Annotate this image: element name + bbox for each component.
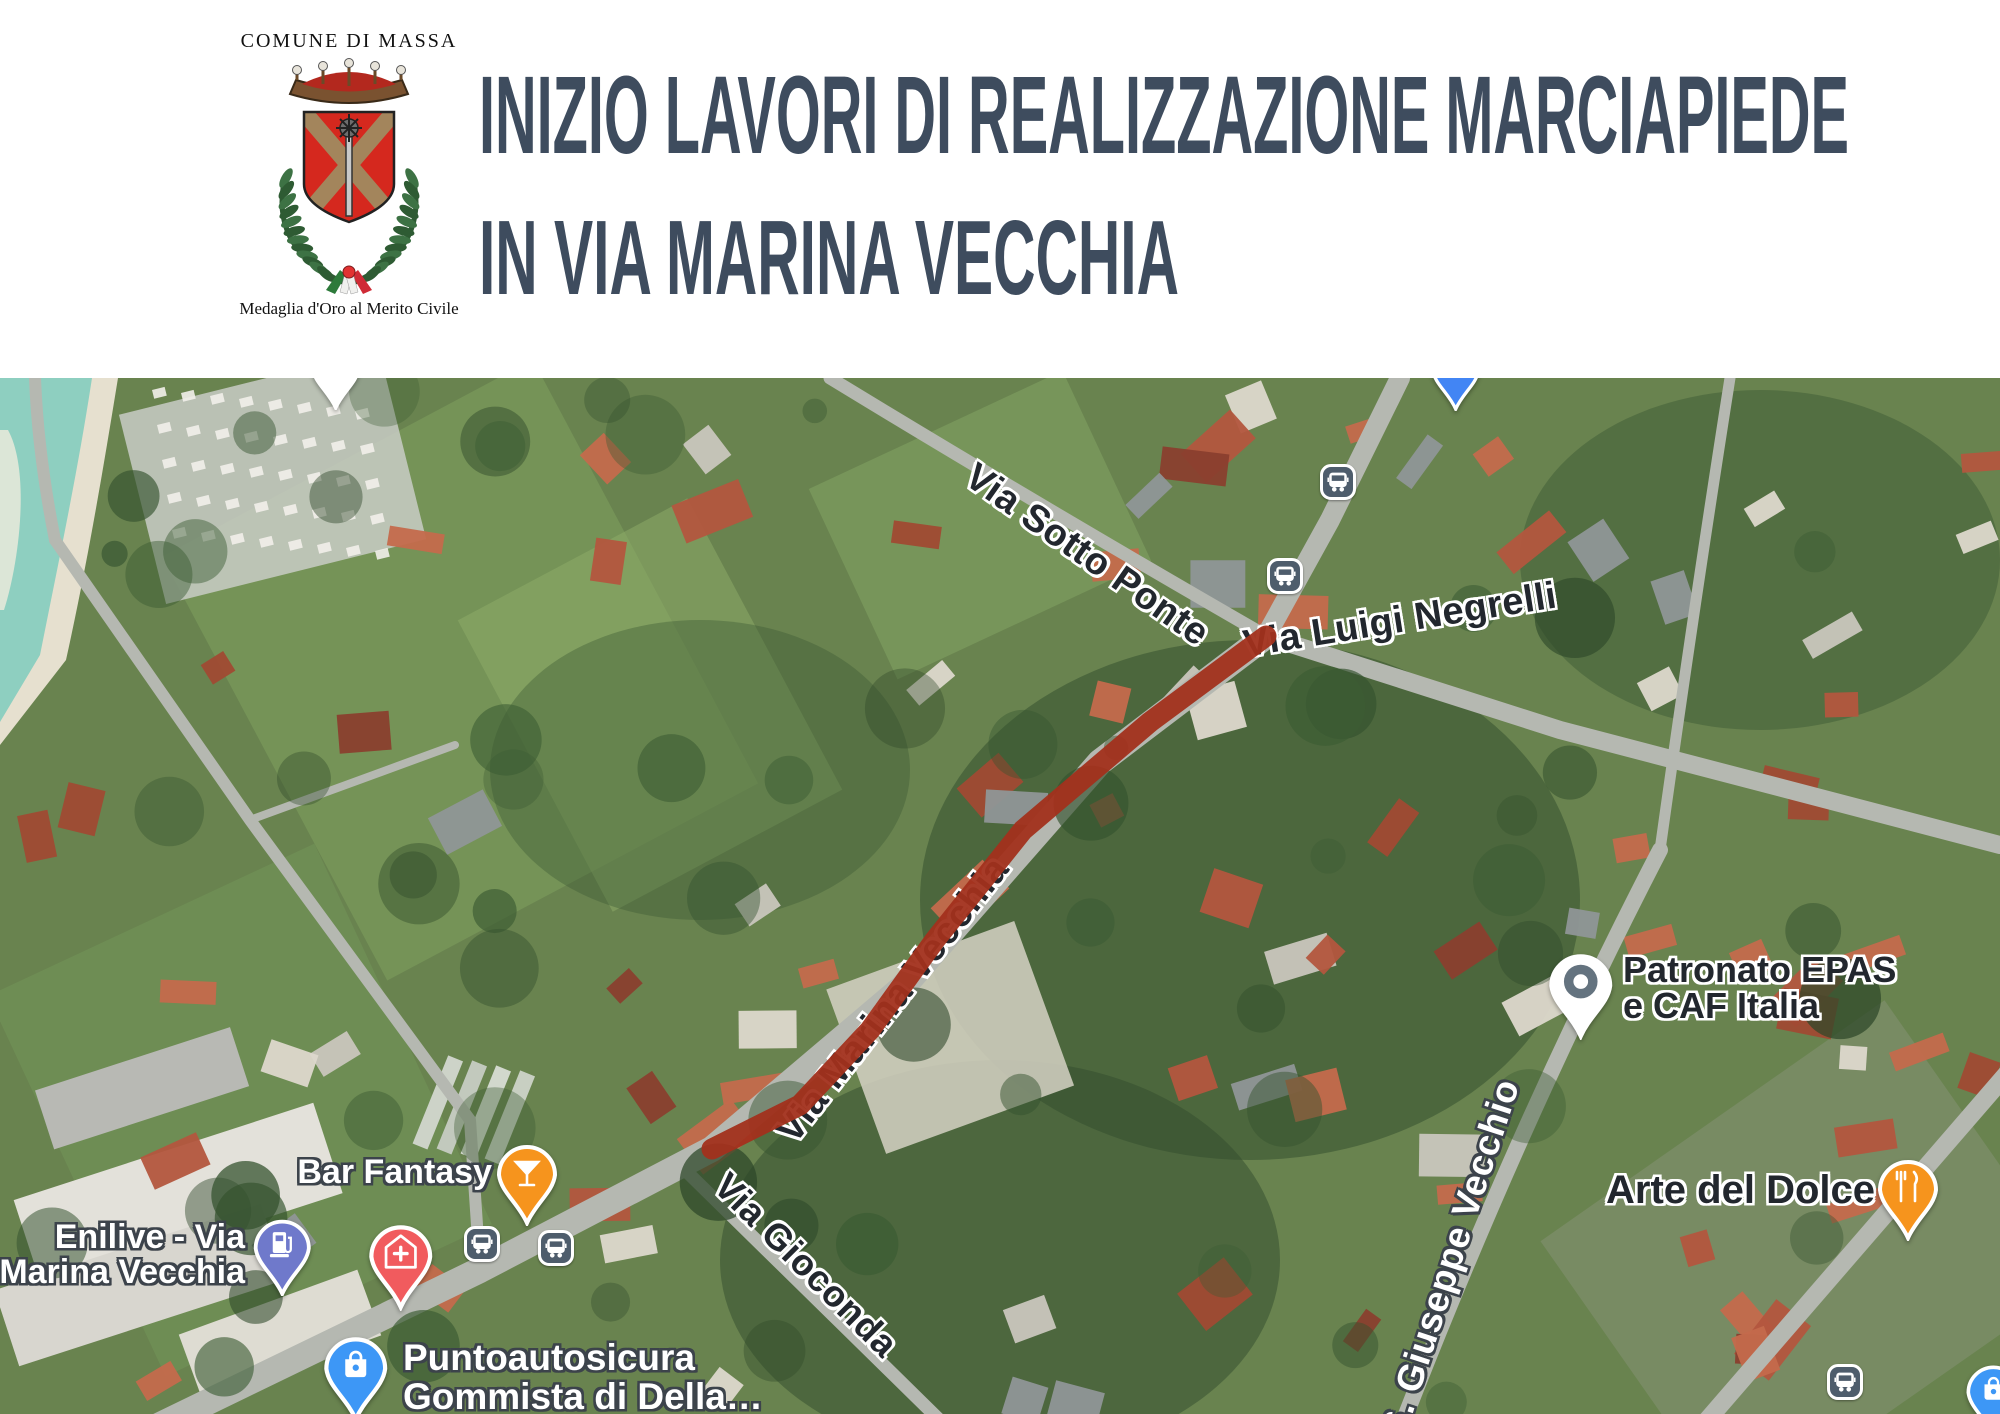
enilive-gas-pin <box>249 1215 316 1297</box>
puntoautosicura-pin <box>319 1332 393 1414</box>
patronato-pin <box>1544 949 1618 1039</box>
bus-icon <box>471 1233 493 1255</box>
page-title: INIZIO LAVORI DI REALIZZAZIONE MARCIAPIE… <box>479 60 1909 320</box>
puntoautosicura-label: PuntoautosicuraGommista di Della… <box>403 1338 763 1414</box>
restaurant-icon <box>1873 1155 1943 1241</box>
title-line-1: INIZIO LAVORI DI REALIZZAZIONE MARCIAPIE… <box>479 60 1849 177</box>
announcement-graphic: Via Sotto PonteVia Luigi NegrelliVia Mar… <box>0 0 2000 1414</box>
motto: Medaglia d'Oro al Merito Civile <box>174 299 524 319</box>
massa-coat-of-arms-icon <box>252 54 447 299</box>
bar-fantasy-pin <box>492 1140 562 1226</box>
shield-icon <box>302 110 396 222</box>
cocktail-icon <box>492 1140 562 1226</box>
shopping-pin-corner <box>1962 1361 2000 1414</box>
poi-label-line: Marina Vecchia <box>0 1255 245 1290</box>
crown-icon <box>290 59 408 104</box>
patronato-label: Patronato EPASe CAF Italia <box>1623 952 1896 1024</box>
title-line-2: IN VIA MARINA VECCHIA <box>479 199 1179 317</box>
poi-label-line: Puntoautosicura <box>403 1338 763 1377</box>
municipality-name: COMUNE DI MASSA <box>199 30 499 53</box>
gas-pump-icon <box>249 1215 316 1297</box>
bus-icon <box>1834 1371 1856 1393</box>
shopping-bag-icon <box>319 1332 393 1414</box>
enilive-label: Enilive - ViaMarina Vecchia <box>0 1220 245 1290</box>
bus-stop-1 <box>1320 464 1356 500</box>
header: COMUNE DI MASSA <box>0 0 2000 378</box>
bus-stop-3 <box>464 1226 500 1262</box>
bar-fantasy-label: Bar Fantasy <box>297 1154 492 1190</box>
shopping-bag-icon <box>1962 1361 2000 1414</box>
health-pharmacy-pin <box>364 1220 438 1310</box>
poi-label-line: Arte del Dolce <box>1606 1170 1875 1210</box>
bus-icon <box>545 1237 567 1259</box>
poi-label-line: e CAF Italia <box>1623 988 1896 1024</box>
poi-label-line: Gommista di Della… <box>403 1377 763 1414</box>
arte-del-dolce-pin <box>1873 1155 1943 1241</box>
bus-stop-2 <box>1267 558 1303 594</box>
bus-icon <box>1327 471 1349 493</box>
bus-stop-4 <box>538 1230 574 1266</box>
dot-icon <box>1544 949 1618 1039</box>
bus-icon <box>1274 565 1296 587</box>
poi-label-line: Patronato EPAS <box>1623 952 1896 988</box>
bus-stop-5 <box>1827 1364 1863 1400</box>
poi-label-line: Bar Fantasy <box>297 1154 492 1190</box>
poi-label-line: Enilive - Via <box>0 1220 245 1255</box>
medical-icon <box>364 1220 438 1310</box>
arte-del-dolce-label: Arte del Dolce <box>1606 1170 1875 1210</box>
